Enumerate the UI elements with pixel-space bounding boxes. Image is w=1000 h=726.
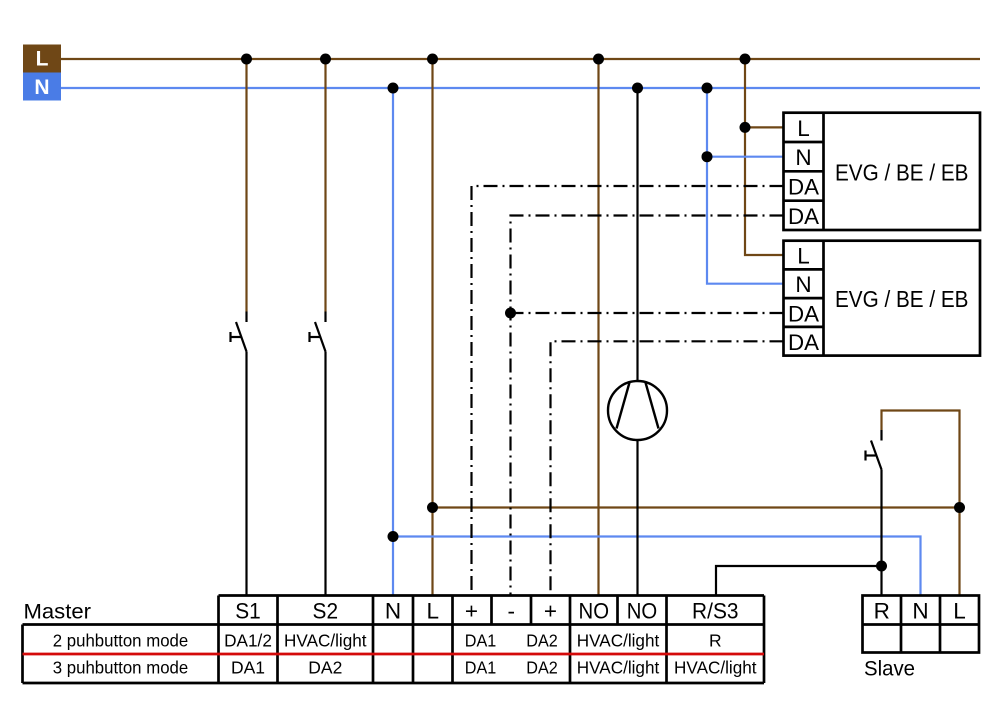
svg-text:+: + xyxy=(465,599,478,624)
svg-text:R/S3: R/S3 xyxy=(692,599,739,624)
svg-text:N: N xyxy=(34,76,49,99)
svg-text:HVAC/light: HVAC/light xyxy=(674,658,757,678)
svg-text:DA: DA xyxy=(788,302,819,327)
svg-text:HVAC/light: HVAC/light xyxy=(284,631,367,651)
svg-text:L: L xyxy=(797,116,810,141)
svg-text:R: R xyxy=(874,599,890,624)
svg-text:N: N xyxy=(385,599,401,624)
svg-text:DA2: DA2 xyxy=(526,658,558,678)
svg-text:+: + xyxy=(544,599,557,624)
svg-text:2 puhbutton mode: 2 puhbutton mode xyxy=(53,631,189,651)
svg-text:R: R xyxy=(709,631,722,651)
svg-text:3 puhbutton mode: 3 puhbutton mode xyxy=(53,658,189,678)
svg-text:L: L xyxy=(797,244,810,269)
svg-text:N: N xyxy=(912,599,928,624)
svg-text:EVG / BE / EB: EVG / BE / EB xyxy=(835,159,969,185)
svg-text:DA1: DA1 xyxy=(231,658,265,678)
svg-text:DA2: DA2 xyxy=(526,631,558,651)
svg-text:L: L xyxy=(953,599,966,624)
svg-text:HVAC/light: HVAC/light xyxy=(577,631,660,651)
svg-text:DA1/2: DA1/2 xyxy=(224,631,272,651)
svg-text:DA1: DA1 xyxy=(465,631,497,651)
svg-text:Master: Master xyxy=(24,600,92,624)
svg-text:DA1: DA1 xyxy=(465,658,497,678)
svg-text:HVAC/light: HVAC/light xyxy=(577,658,660,678)
svg-text:DA: DA xyxy=(788,175,819,200)
svg-text:DA: DA xyxy=(788,204,819,229)
svg-text:N: N xyxy=(795,145,811,170)
svg-text:DA: DA xyxy=(788,330,819,355)
svg-text:S1: S1 xyxy=(235,599,261,624)
svg-text:L: L xyxy=(427,599,440,624)
svg-text:NO: NO xyxy=(627,599,658,624)
svg-text:L: L xyxy=(36,48,49,71)
svg-text:NO: NO xyxy=(579,599,610,624)
svg-text:-: - xyxy=(508,599,516,624)
svg-text:Slave: Slave xyxy=(864,657,915,681)
svg-text:S2: S2 xyxy=(313,599,339,624)
svg-text:EVG / BE / EB: EVG / BE / EB xyxy=(835,286,969,312)
svg-text:DA2: DA2 xyxy=(308,658,342,678)
svg-text:N: N xyxy=(795,272,811,297)
